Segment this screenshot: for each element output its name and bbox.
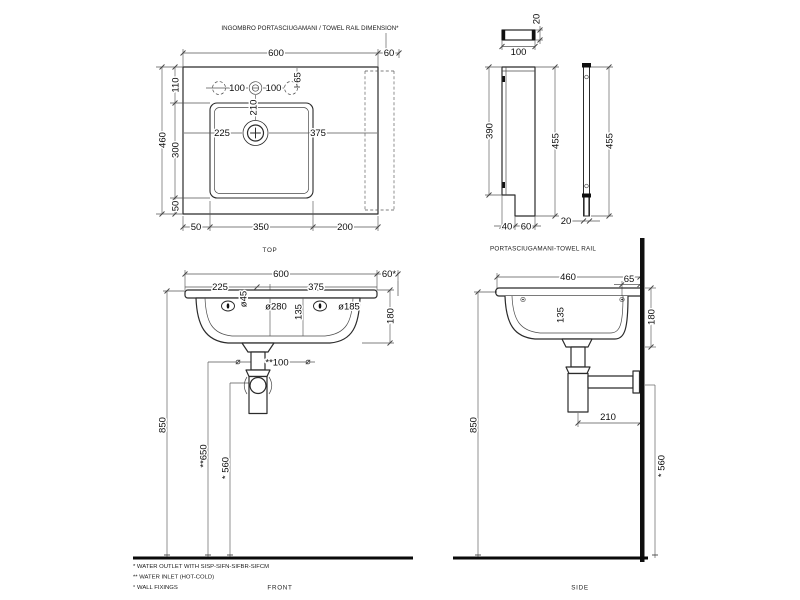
side-view-label: SIDE: [571, 585, 589, 592]
side-dim-wall-to-hole: 65: [624, 274, 635, 285]
front-tailpipe: [251, 352, 265, 370]
side-outlet-pipe: [588, 376, 633, 388]
front-view-label: FRONT: [267, 585, 292, 592]
rail-dim-height-front: 455: [605, 133, 616, 149]
top-dim-basin-width: 350: [253, 222, 269, 233]
side-trap-nut: [566, 367, 590, 374]
side-drain-flange: [562, 339, 592, 347]
top-dim-drain-from-left: 225: [214, 128, 230, 139]
top-dim-drain-from-right: 375: [310, 128, 326, 139]
side-wall-line: [640, 238, 645, 562]
front-dim-inlet-spacing: **100: [265, 358, 288, 369]
rail-bar-fixing-hole-top: [585, 75, 589, 79]
rail-bracket-top-view: [502, 30, 535, 40]
side-trap-body: [568, 374, 588, 413]
front-dim-rim-height: 850: [158, 417, 169, 433]
rail-side-profile: [502, 67, 535, 216]
front-dim-tap-hole-dia: ø45: [239, 291, 250, 307]
side-dim-trap-to-wall: 210: [600, 412, 616, 423]
rail-dim-bracket-width: 100: [511, 47, 527, 58]
footnote-wall-fixings: ° WALL FIXINGS: [133, 585, 178, 591]
rail-bar-band: [582, 194, 591, 198]
rail-dim-foot-a: 40: [502, 222, 513, 233]
front-dim-drain-left: 225: [212, 282, 228, 293]
top-view-label: TOP: [263, 247, 278, 254]
front-dim-inlet-height: **650: [199, 444, 210, 467]
top-dim-hole-spacing-right: 100: [266, 83, 282, 94]
top-dim-tap-inset: 65: [293, 72, 304, 83]
rail-front-bar: [582, 63, 591, 216]
side-dim-outlet-height: * 560: [657, 455, 668, 477]
front-trap-nut: [246, 370, 270, 377]
side-view: 460 65 135 180 210 850 * 560 SIDE: [453, 238, 668, 592]
side-basin-body: [505, 296, 628, 339]
top-dim-towel-rail-width: 60: [384, 48, 395, 59]
side-countertop: [496, 288, 640, 296]
rail-bar-top-cap: [582, 63, 591, 68]
top-dim-bottom-left: 50: [191, 222, 202, 233]
front-dim-drain-right: 375: [308, 282, 324, 293]
rail-dim-foot-b: 60: [521, 222, 532, 233]
top-dim-bottom-right: 200: [337, 222, 353, 233]
front-view: 600 60* 225 375 ø45 ø280 135 ø185 180 **…: [133, 269, 413, 592]
front-dim-towel-rail-ext: 60*: [382, 269, 397, 280]
front-drain-flange: [242, 343, 274, 352]
top-dim-overall-width: 600: [268, 48, 284, 59]
rail-bar-fixing-hole-bottom: [585, 184, 589, 188]
front-trap-boss: [250, 378, 266, 394]
side-wall-flange: [633, 371, 640, 393]
front-dim-overall-width: 600: [273, 269, 289, 280]
top-dim-overall-depth: 460: [158, 132, 169, 148]
top-view-drain: [243, 121, 268, 146]
front-dim-inlet-span: ø280: [265, 302, 287, 313]
towel-rail-caption: PORTASCIUGAMANI-TOWEL RAIL: [490, 246, 596, 253]
side-dim-apron-height: 180: [647, 309, 658, 325]
rail-dim-bracket-thickness: 20: [532, 14, 543, 25]
rail-dim-plate-height: 390: [485, 123, 496, 139]
side-dim-basin-depth: 135: [556, 307, 567, 323]
side-dim-overall-depth: 460: [560, 272, 576, 283]
towel-rail-header-note: INGOMBRO PORTASCIUGAMANI / TOWEL RAIL DI…: [221, 25, 399, 32]
technical-drawing-canvas: INGOMBRO PORTASCIUGAMANI / TOWEL RAIL DI…: [0, 0, 800, 600]
top-dim-edge-to-basin: 110: [171, 77, 182, 92]
front-drain-trap: [242, 343, 274, 414]
footnote-water-outlet: * WATER OUTLET WITH SISP-SIFN-SIFBR-SIFC…: [133, 564, 269, 570]
front-dim-apron-height: 180: [386, 308, 397, 324]
top-dim-basin-bottom-offset: 50: [171, 201, 182, 212]
side-tailpipe: [571, 347, 585, 367]
rail-fixing-mark-bottom: [503, 182, 506, 188]
front-dim-overflow-dia: ø185: [338, 302, 360, 313]
rail-dim-bar-width: 20: [561, 216, 572, 227]
side-drain-trap: [562, 339, 640, 412]
footnotes: * WATER OUTLET WITH SISP-SIFN-SIFBR-SIFC…: [133, 564, 269, 591]
top-dim-hole-spacing-left: 100: [229, 83, 245, 94]
top-dim-tap-to-drain: 210: [249, 100, 260, 116]
footnote-water-inlet: ** WATER INLET (HOT-COLD): [133, 575, 214, 581]
top-view: INGOMBRO PORTASCIUGAMANI / TOWEL RAIL DI…: [156, 25, 402, 254]
rail-dim-height-side: 455: [551, 133, 562, 149]
front-dim-outlet-height: * 560: [221, 457, 232, 479]
towel-rail-views: 100 20 390 455 40 60: [485, 14, 616, 253]
top-dim-basin-depth: 300: [171, 142, 182, 158]
front-dim-basin-depth: 135: [294, 304, 305, 320]
rail-fixing-mark-top: [503, 76, 506, 82]
side-dim-rim-height: 850: [469, 417, 480, 433]
